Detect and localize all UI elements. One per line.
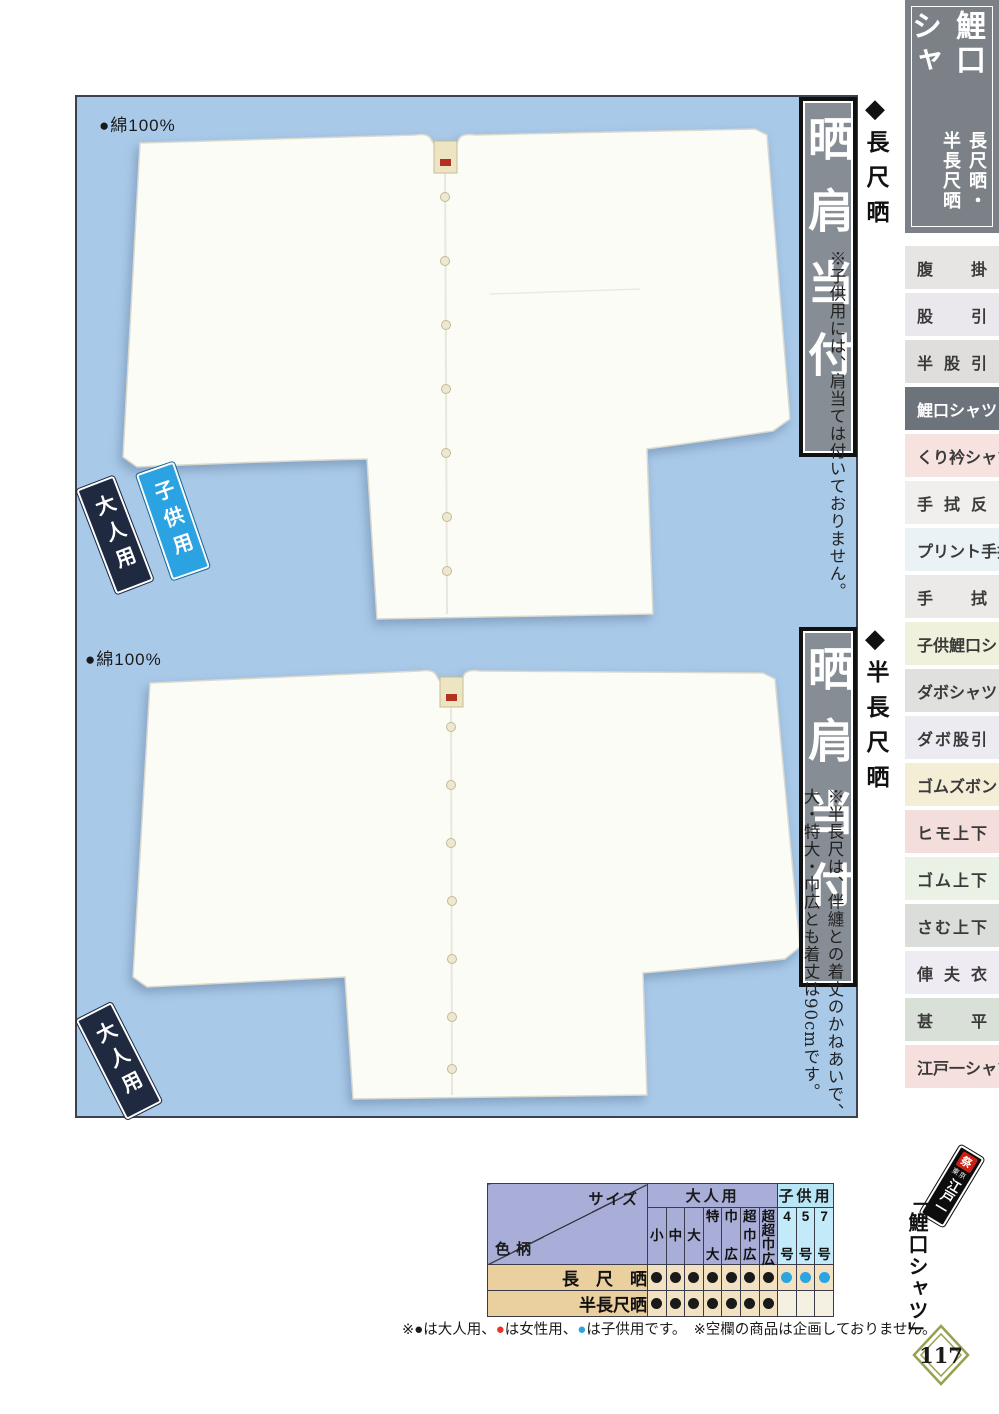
sidebar-item-label: 鯉口シャツ bbox=[917, 397, 987, 421]
corner-size-label: サイズ bbox=[588, 1188, 639, 1209]
sidebar-item[interactable]: 手拭反 bbox=[905, 481, 999, 524]
availability-dot-adult bbox=[763, 1272, 774, 1283]
table-size-column-header: 小 bbox=[648, 1208, 667, 1265]
table-row-label: 長 尺 晒 bbox=[488, 1265, 648, 1291]
sidebar-item-label: ダボ股引 bbox=[917, 726, 987, 750]
sidebar-item-label: 俥夫衣 bbox=[917, 961, 987, 985]
availability-dot-adult bbox=[670, 1272, 681, 1283]
page-number-ornament: 117 bbox=[912, 1324, 970, 1386]
product-photo-half-long-shirt bbox=[95, 655, 807, 1107]
availability-cell bbox=[778, 1265, 797, 1291]
availability-cell bbox=[666, 1291, 685, 1317]
availability-cell bbox=[759, 1291, 778, 1317]
availability-cell bbox=[722, 1291, 741, 1317]
availability-dot-adult bbox=[744, 1272, 755, 1283]
page-number: 117 bbox=[912, 1324, 970, 1386]
collar-tag bbox=[440, 677, 463, 707]
sidebar-item[interactable]: プリント手拭 bbox=[905, 528, 999, 571]
sidebar-item-label: プリント手拭 bbox=[917, 538, 987, 562]
sidebar-item[interactable]: 江戸一シャツ bbox=[905, 1045, 999, 1088]
sidebar-item[interactable]: 甚平 bbox=[905, 998, 999, 1041]
legend-dot-icon: ● bbox=[577, 1321, 586, 1338]
availability-cell bbox=[815, 1291, 834, 1317]
legend-dot-icon: ● bbox=[496, 1321, 505, 1338]
availability-dot-child bbox=[781, 1272, 792, 1283]
availability-cell bbox=[796, 1291, 815, 1317]
sidebar-item-label: ゴムズボン bbox=[917, 773, 987, 797]
sidebar-item[interactable]: ダボシャツ bbox=[905, 669, 999, 712]
table-group-header: 子供用 bbox=[778, 1184, 834, 1208]
sidebar-item[interactable]: 俥夫衣 bbox=[905, 951, 999, 994]
availability-cell bbox=[648, 1265, 667, 1291]
sidebar-item[interactable]: さむ上下 bbox=[905, 904, 999, 947]
shirt-silhouette bbox=[123, 129, 790, 619]
table-row: 半長尺晒 bbox=[488, 1291, 834, 1317]
availability-cell bbox=[778, 1291, 797, 1317]
category-header: 鯉口シャツ 長尺晒・半長尺晒 bbox=[905, 0, 999, 233]
availability-cell bbox=[759, 1265, 778, 1291]
legend-prefix: ※ bbox=[402, 1322, 414, 1338]
table-size-column-header: 中 bbox=[666, 1208, 685, 1265]
sidebar-item[interactable]: ヒモ上下 bbox=[905, 810, 999, 853]
sidebar-item[interactable]: 鯉口シャツ bbox=[905, 387, 999, 430]
catalog-page: ●綿100% 大人用 子供用 ●綿100% bbox=[0, 0, 999, 1414]
availability-cell bbox=[666, 1265, 685, 1291]
sidebar-item[interactable]: 手拭 bbox=[905, 575, 999, 618]
sidebar-item[interactable]: ダボ股引 bbox=[905, 716, 999, 759]
table-size-column-header: 特大 bbox=[703, 1208, 722, 1265]
availability-dot-adult bbox=[688, 1272, 699, 1283]
shirt-silhouette bbox=[133, 671, 800, 1100]
sidebar-item-label: さむ上下 bbox=[917, 914, 987, 938]
section-title-label: 長尺晒 bbox=[862, 130, 889, 235]
sidebar-item[interactable]: 腹掛 bbox=[905, 246, 999, 289]
section-title: ◆長尺晒 bbox=[858, 94, 892, 235]
availability-dot-child bbox=[800, 1272, 811, 1283]
header-subtitle: 長尺晒・半長尺晒 bbox=[915, 131, 989, 223]
availability-dot-adult bbox=[726, 1298, 737, 1309]
legend-label: は大人用、 bbox=[423, 1322, 496, 1338]
table-size-column-header: 超巾広 bbox=[740, 1208, 759, 1265]
sidebar-item-label: 江戸一シャツ bbox=[917, 1055, 987, 1079]
size-table: サイズ色柄大人用子供用小中大特大巾広超巾広超超巾広4号5号7号長 尺 晒半長尺晒 bbox=[487, 1183, 834, 1317]
availability-cell bbox=[722, 1265, 741, 1291]
sidebar-item[interactable]: 半股引 bbox=[905, 340, 999, 383]
legend-label: は女性用、 bbox=[505, 1322, 578, 1338]
availability-dot-adult bbox=[726, 1272, 737, 1283]
availability-dot-adult bbox=[670, 1298, 681, 1309]
section-title: ◆半長尺晒 bbox=[858, 624, 892, 800]
legend-dot-icon: ● bbox=[414, 1321, 423, 1338]
availability-dot-adult bbox=[707, 1272, 718, 1283]
section-title-label: 半長尺晒 bbox=[862, 660, 889, 800]
sidebar-item-label: ヒモ上下 bbox=[917, 820, 987, 844]
sidebar: 腹掛股引半股引鯉口シャツくり衿シャツ手拭反プリント手拭手拭子供鯉口シャツダボシャ… bbox=[905, 246, 999, 1092]
sidebar-item-label: くり衿シャツ bbox=[917, 444, 987, 468]
sidebar-item-label: 手拭 bbox=[917, 585, 987, 609]
product-note: ※半長尺は、伴纏との着丈のかねあいで、大・特大・巾広とも着丈は90cmです。 bbox=[790, 788, 846, 1128]
diamond-icon: ◆ bbox=[860, 94, 890, 130]
availability-cell bbox=[685, 1291, 704, 1317]
table-size-column-header: 7号 bbox=[815, 1208, 834, 1265]
availability-cell bbox=[685, 1265, 704, 1291]
header-title: 鯉口シャツ bbox=[915, 10, 989, 107]
sidebar-item[interactable]: くり衿シャツ bbox=[905, 434, 999, 477]
table-size-column-header: 5号 bbox=[796, 1208, 815, 1265]
sidebar-item-label: ゴム上下 bbox=[917, 867, 987, 891]
table-corner-cell: サイズ色柄 bbox=[488, 1184, 648, 1265]
sidebar-item-label: 子供鯉口シャツ bbox=[917, 632, 987, 656]
sidebar-item-label: 手拭反 bbox=[917, 491, 987, 515]
table-row: 長 尺 晒 bbox=[488, 1265, 834, 1291]
brand-name: 江戸一 bbox=[928, 1174, 964, 1217]
availability-dot-adult bbox=[707, 1298, 718, 1309]
category-label: 「鯉口シャツ」 bbox=[903, 1190, 932, 1344]
availability-cell bbox=[740, 1291, 759, 1317]
collar-tag bbox=[434, 141, 457, 173]
diamond-icon: ◆ bbox=[860, 624, 890, 660]
size-table-legend: ※●は大人用、●は女性用、●は子供用です。 ※空欄の商品は企画しておりません。 bbox=[402, 1318, 848, 1339]
availability-cell bbox=[648, 1291, 667, 1317]
corner-color-label: 色柄 bbox=[495, 1238, 537, 1259]
table-size-column-header: 巾広 bbox=[722, 1208, 741, 1265]
legend-label: は子供用です。 bbox=[586, 1322, 679, 1338]
availability-dot-adult bbox=[651, 1272, 662, 1283]
availability-cell bbox=[815, 1265, 834, 1291]
availability-cell bbox=[796, 1265, 815, 1291]
table-size-column-header: 4号 bbox=[778, 1208, 797, 1265]
sidebar-item[interactable]: ゴムズボン bbox=[905, 763, 999, 806]
sidebar-item-label: 半股引 bbox=[917, 350, 987, 374]
table-size-column-header: 大 bbox=[685, 1208, 704, 1265]
availability-dot-adult bbox=[651, 1298, 662, 1309]
sidebar-item-label: 股引 bbox=[917, 303, 987, 327]
availability-cell bbox=[703, 1265, 722, 1291]
sidebar-item-label: 甚平 bbox=[917, 1008, 987, 1032]
availability-cell bbox=[703, 1291, 722, 1317]
table-group-header: 大人用 bbox=[648, 1184, 778, 1208]
collar-tag-mark bbox=[440, 159, 451, 166]
sidebar-item[interactable]: 股引 bbox=[905, 293, 999, 336]
sidebar-item-label: 腹掛 bbox=[917, 256, 987, 280]
availability-dot-adult bbox=[688, 1298, 699, 1309]
availability-cell bbox=[740, 1265, 759, 1291]
sidebar-item-label: ダボシャツ bbox=[917, 679, 987, 703]
sidebar-item[interactable]: 子供鯉口シャツ bbox=[905, 622, 999, 665]
availability-dot-child bbox=[819, 1272, 830, 1283]
table-size-column-header: 超超巾広 bbox=[759, 1208, 778, 1265]
collar-tag-mark bbox=[446, 694, 457, 701]
availability-dot-adult bbox=[763, 1298, 774, 1309]
legend-empty-note: ※空欄の商品は企画しておりません。 bbox=[694, 1322, 937, 1338]
product-note: ※子供用には、肩当ては付いておりません。 bbox=[804, 250, 848, 620]
table-row-label: 半長尺晒 bbox=[488, 1291, 648, 1317]
sidebar-item[interactable]: ゴム上下 bbox=[905, 857, 999, 900]
content-panel: ●綿100% 大人用 子供用 ●綿100% bbox=[75, 95, 858, 1118]
availability-dot-adult bbox=[744, 1298, 755, 1309]
placket-seam bbox=[451, 691, 452, 1095]
